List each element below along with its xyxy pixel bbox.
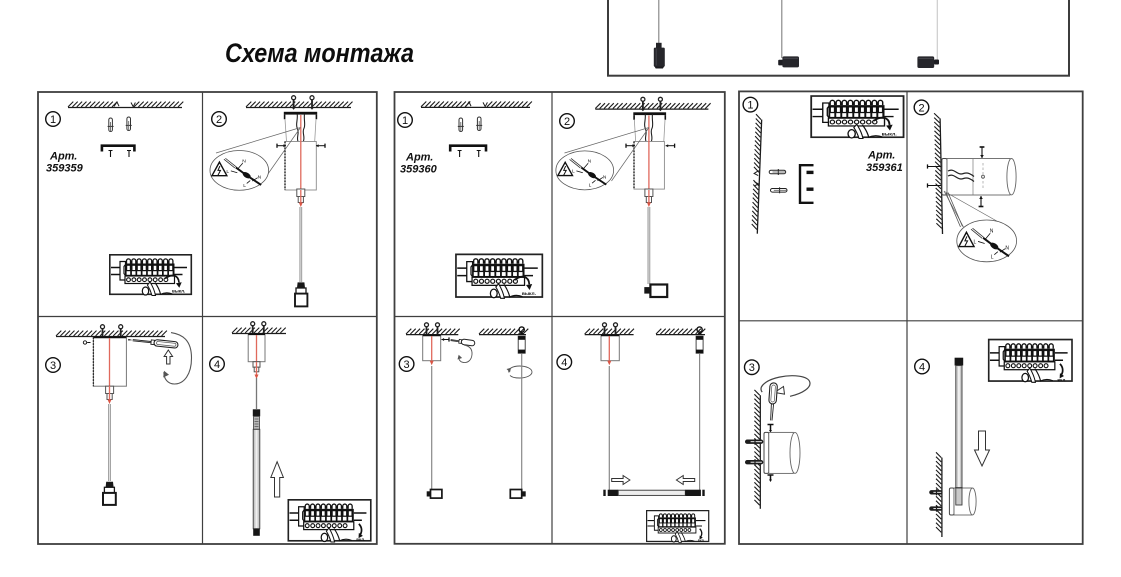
svg-text:2: 2 bbox=[216, 114, 222, 126]
svg-text:Арт.: Арт. bbox=[405, 152, 433, 164]
svg-text:4: 4 bbox=[919, 361, 925, 373]
svg-text:Арт.: Арт. bbox=[867, 150, 895, 162]
svg-text:359359: 359359 bbox=[46, 163, 84, 175]
svg-text:2: 2 bbox=[918, 102, 924, 114]
svg-text:Схема монтажа: Схема монтажа bbox=[225, 38, 414, 68]
svg-text:1: 1 bbox=[50, 114, 56, 126]
svg-text:3: 3 bbox=[50, 360, 56, 372]
svg-text:359361: 359361 bbox=[866, 162, 903, 174]
svg-text:359360: 359360 bbox=[400, 164, 438, 176]
svg-text:1: 1 bbox=[747, 100, 753, 112]
svg-text:Арт.: Арт. bbox=[49, 151, 77, 163]
svg-text:3: 3 bbox=[749, 362, 755, 374]
svg-text:2: 2 bbox=[564, 116, 570, 128]
svg-text:4: 4 bbox=[561, 357, 567, 369]
svg-text:3: 3 bbox=[404, 359, 410, 371]
svg-text:4: 4 bbox=[214, 359, 220, 371]
svg-text:1: 1 bbox=[402, 115, 408, 127]
